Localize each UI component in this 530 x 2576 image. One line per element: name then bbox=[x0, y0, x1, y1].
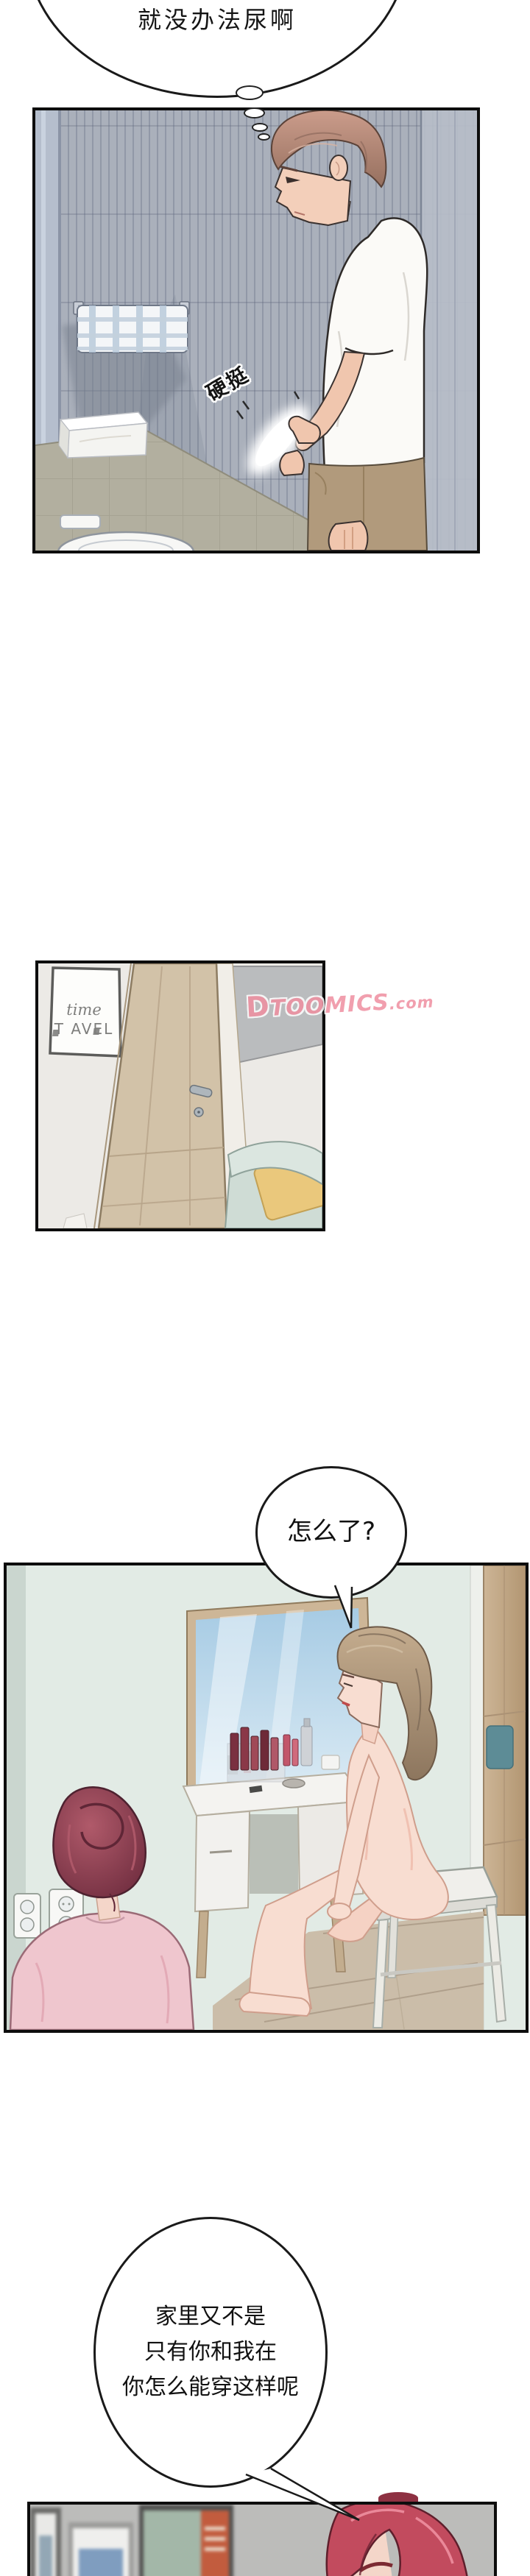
blurred-wall-frames bbox=[30, 2505, 233, 2576]
man-figure bbox=[237, 110, 427, 551]
poster-line2: T AVEL bbox=[53, 1020, 115, 1038]
thought-trail-circle bbox=[252, 123, 268, 132]
speech-bubble-bottom: 家里又不是 只有你和我在 你怎么能穿这样呢 bbox=[93, 2217, 328, 2488]
poster-line1: time bbox=[53, 1001, 115, 1019]
thought-trail-circle bbox=[236, 85, 264, 100]
shelf-box bbox=[59, 412, 147, 458]
speech-bubble-bottom-text: 家里又不是 只有你和我在 你怎么能穿这样呢 bbox=[122, 2299, 299, 2405]
thought-trail-circle bbox=[258, 133, 270, 141]
comic-panel-vanity-room bbox=[4, 1563, 529, 2033]
bathroom-scene bbox=[35, 110, 477, 551]
comic-page: 就没办法尿啊 bbox=[0, 0, 530, 2576]
speech-bubble-mid-text: 怎么了? bbox=[287, 1514, 375, 1550]
speech-tail-bottom bbox=[236, 2467, 368, 2524]
man-shirt bbox=[323, 218, 427, 472]
poster-text: time T AVEL bbox=[53, 1001, 115, 1038]
towel bbox=[77, 305, 188, 353]
sofa bbox=[225, 1142, 322, 1228]
vanity-room-scene bbox=[7, 1565, 526, 2030]
speech-tail-mid bbox=[331, 1579, 364, 1638]
thought-trail-circle bbox=[244, 107, 265, 118]
hanging-towel bbox=[487, 1726, 513, 1769]
thought-bubble-top-text: 就没办法尿啊 bbox=[110, 1, 324, 35]
right-tile-wall bbox=[421, 110, 477, 551]
toomics-logo: D bbox=[245, 990, 271, 1024]
comic-panel-bathroom bbox=[32, 107, 480, 553]
man-hand-side bbox=[329, 521, 368, 551]
